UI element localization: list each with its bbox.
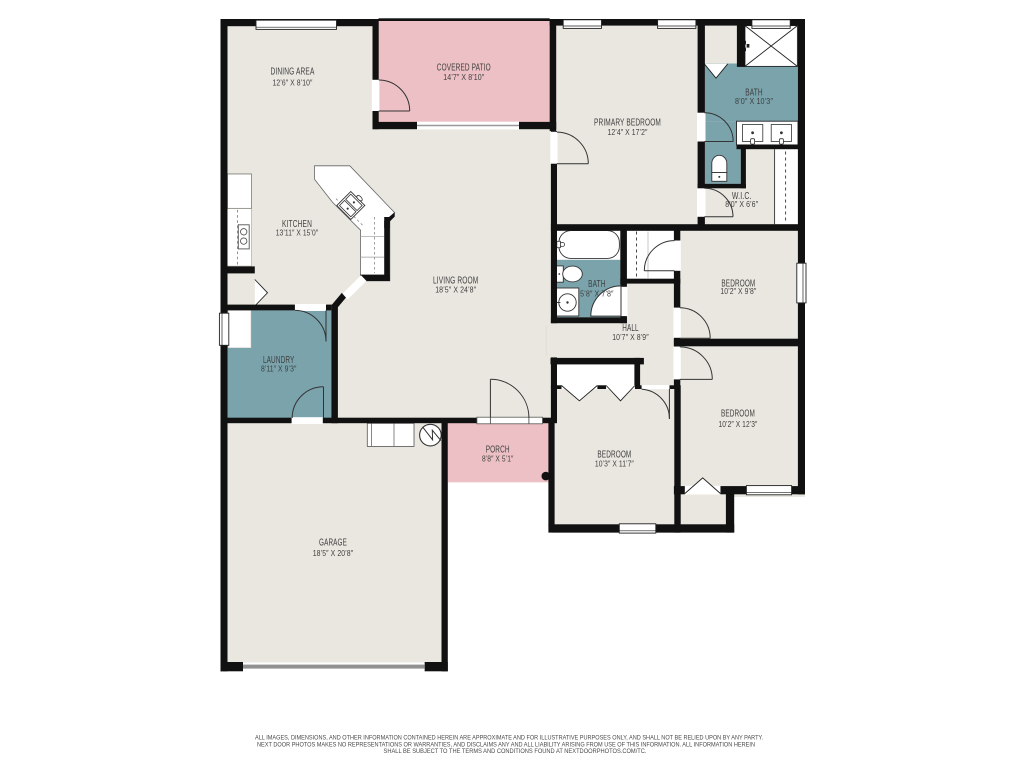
svg-text:DINING AREA: DINING AREA bbox=[271, 67, 315, 78]
svg-text:8’0″ X 6’6″: 8’0″ X 6’6″ bbox=[725, 199, 758, 209]
svg-text:BEDROOM: BEDROOM bbox=[721, 408, 755, 419]
svg-text:14’7″ X 8’10″: 14’7″ X 8’10″ bbox=[443, 72, 484, 82]
svg-text:12’4″ X 17’2″: 12’4″ X 17’2″ bbox=[608, 127, 648, 137]
svg-text:8’0″ X 10’3″: 8’0″ X 10’3″ bbox=[735, 96, 773, 106]
svg-text:8’11″ X 9’3″: 8’11″ X 9’3″ bbox=[261, 364, 297, 374]
svg-text:SHALL BE SUBJECT TO THE TERMS: SHALL BE SUBJECT TO THE TERMS AND CONDIT… bbox=[384, 748, 647, 755]
svg-text:18’5″ X 24’8″: 18’5″ X 24’8″ bbox=[435, 285, 476, 295]
svg-text:10’3″ X 11’7″: 10’3″ X 11’7″ bbox=[595, 459, 634, 469]
svg-text:10’7″ X 8’9″: 10’7″ X 8’9″ bbox=[612, 332, 649, 342]
svg-text:10’2″ X 9’8″: 10’2″ X 9’8″ bbox=[720, 286, 756, 296]
svg-text:10’2″ X 12’3″: 10’2″ X 12’3″ bbox=[719, 419, 758, 429]
svg-text:8’8″ X 5’1″: 8’8″ X 5’1″ bbox=[482, 454, 514, 464]
svg-text:ALL IMAGES, DIMENSIONS, AND OT: ALL IMAGES, DIMENSIONS, AND OTHER INFORM… bbox=[255, 734, 763, 741]
svg-text:5’8″ X 7’8″: 5’8″ X 7’8″ bbox=[580, 289, 614, 299]
svg-text:13’11″ X 15’0″: 13’11″ X 15’0″ bbox=[276, 228, 319, 238]
svg-text:GARAGE: GARAGE bbox=[319, 537, 347, 548]
svg-text:18’5″ X 20’8″: 18’5″ X 20’8″ bbox=[313, 548, 354, 558]
svg-text:12’6″ X 8’10″: 12’6″ X 8’10″ bbox=[273, 78, 313, 88]
